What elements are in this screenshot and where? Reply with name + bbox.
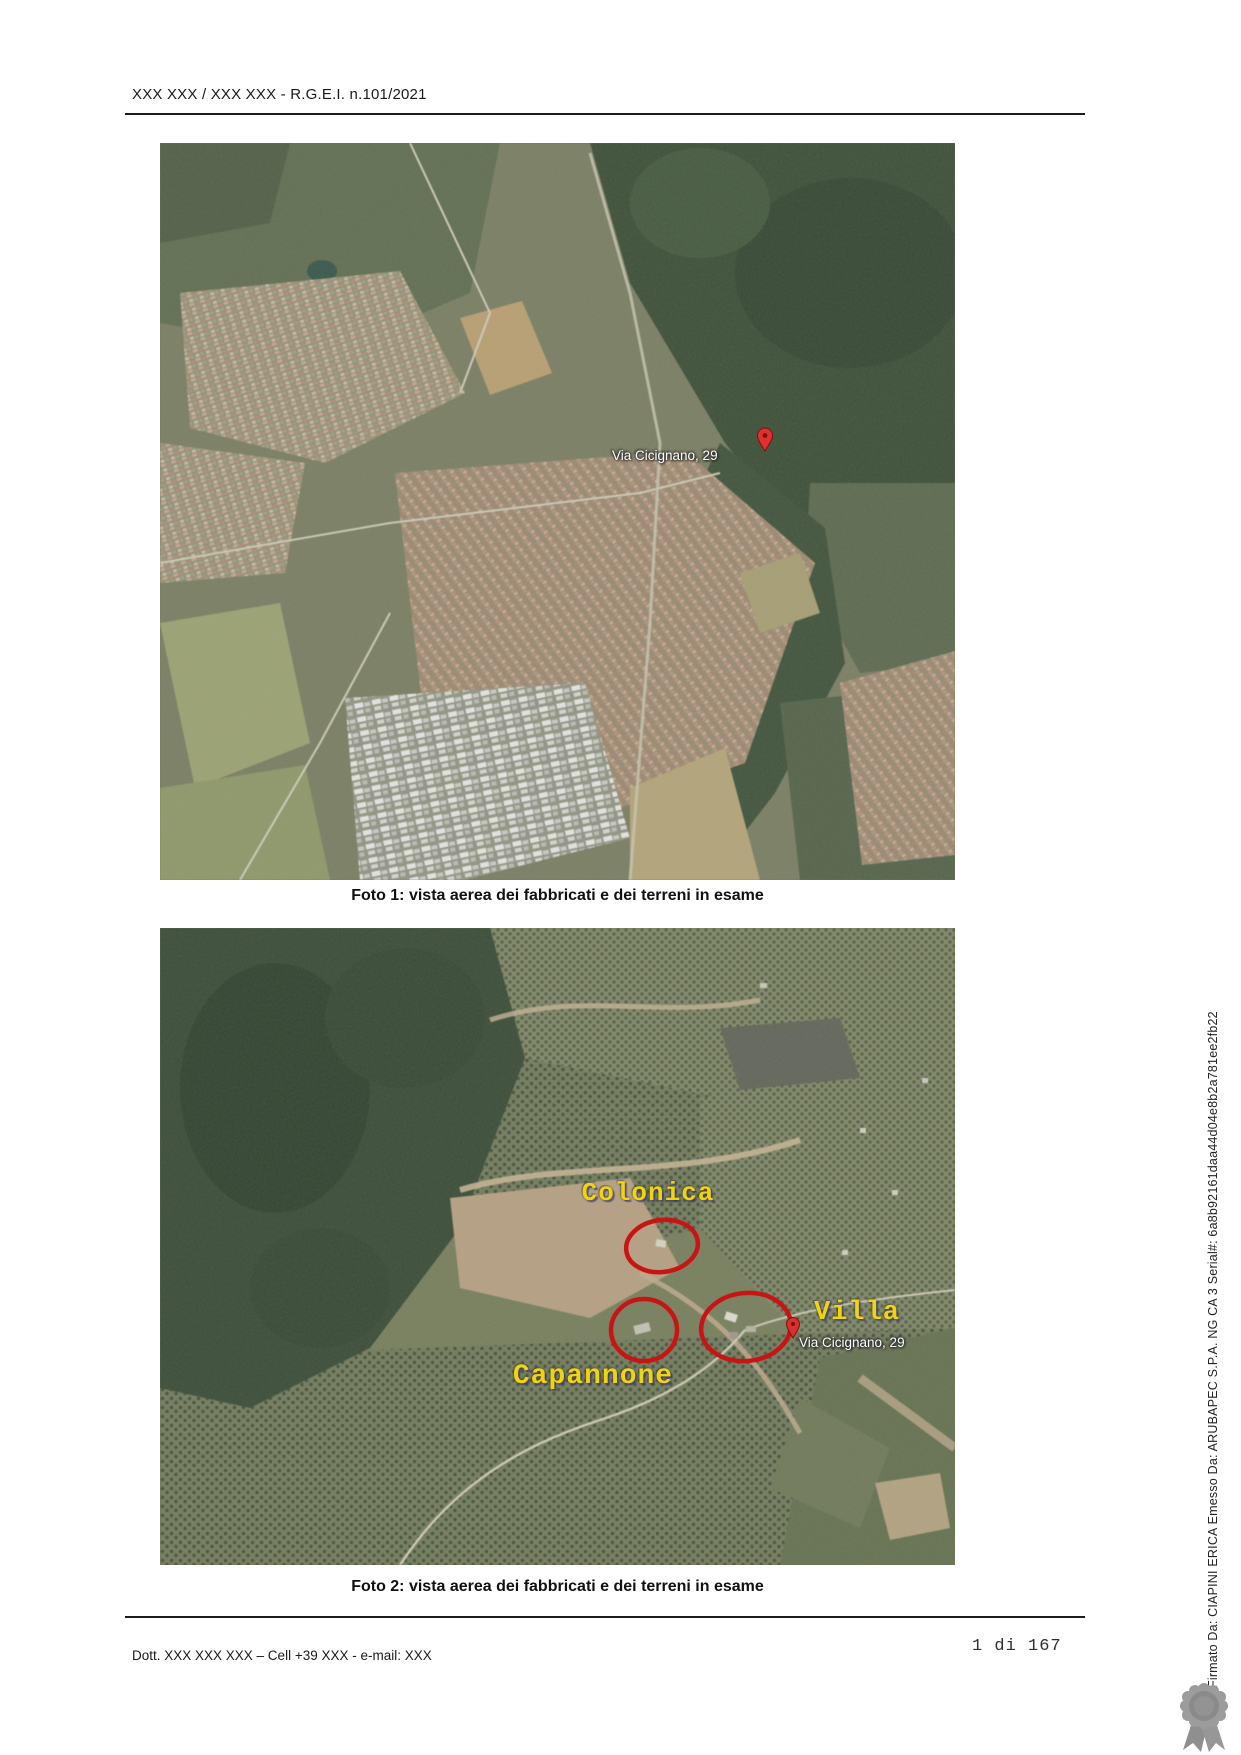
footer-divider <box>125 1616 1085 1618</box>
header-title: XXX XXX / XXX XXX - R.G.E.I. n.101/2021 <box>132 86 427 103</box>
header-divider <box>125 113 1085 115</box>
signature-text: Firmato Da: CIAPINI ERICA Emesso Da: ARU… <box>1206 1011 1220 1688</box>
aerial-photo-2: Colonica Villa Capannone Via Cicignano, … <box>160 928 955 1565</box>
annotation-label-villa: Villa <box>814 1298 900 1328</box>
satellite-terrain-2 <box>160 928 955 1565</box>
document-page: XXX XXX / XXX XXX - R.G.E.I. n.101/2021 <box>0 0 1241 1755</box>
satellite-terrain-1 <box>160 143 955 880</box>
aerial-photo-1: Via Cicignano, 29 <box>160 143 955 880</box>
photo-1-caption: Foto 1: vista aerea dei fabbricati e dei… <box>160 887 955 905</box>
annotation-label-colonica: Colonica <box>582 1178 715 1208</box>
ribbon-seal-icon <box>1168 1678 1240 1755</box>
page-number: 1 di 167 <box>972 1637 1062 1656</box>
footer-contact: Dott. XXX XXX XXX – Cell +39 XXX - e-mai… <box>132 1648 432 1663</box>
map-pin-label: Via Cicignano, 29 <box>612 448 718 463</box>
map-pin-label: Via Cicignano, 29 <box>799 1335 905 1350</box>
photo-2-caption: Foto 2: vista aerea dei fabbricati e dei… <box>160 1578 955 1596</box>
annotation-label-capannone: Capannone <box>513 1361 673 1392</box>
